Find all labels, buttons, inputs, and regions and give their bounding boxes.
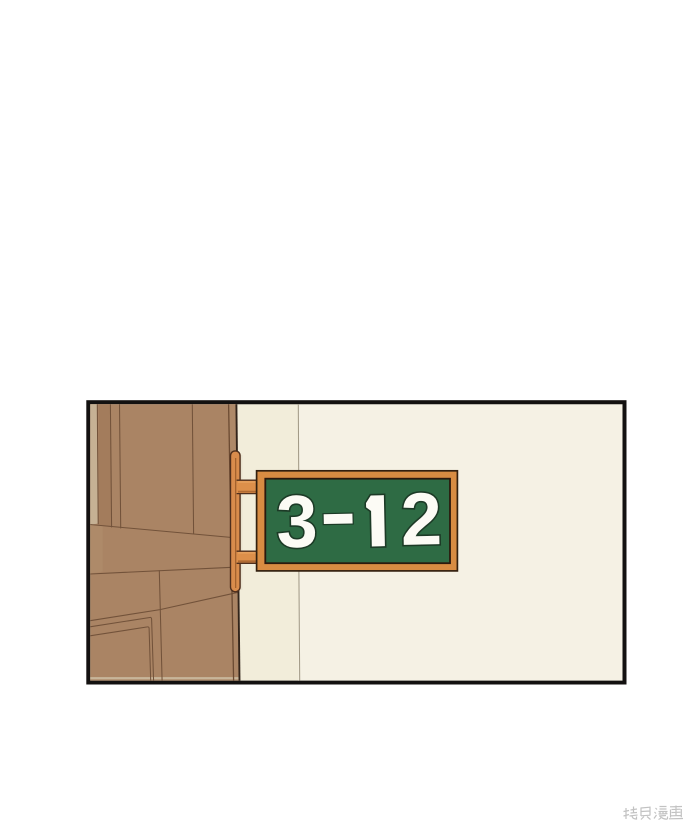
svg-text:2: 2 [400,477,443,561]
svg-text:3: 3 [275,480,318,564]
